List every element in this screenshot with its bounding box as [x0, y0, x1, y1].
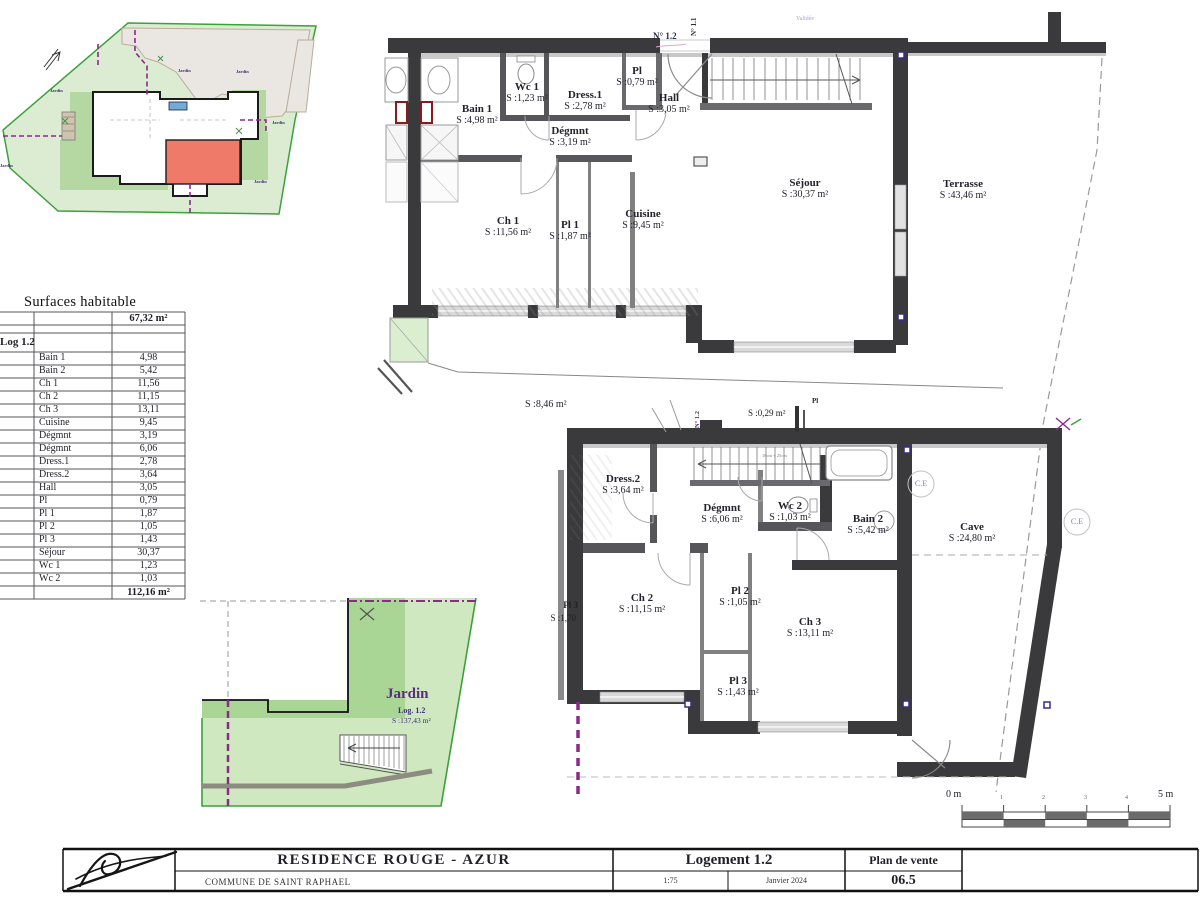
room-label-pl: PlS :0,79 m²	[607, 65, 667, 89]
room-label-terrasse: TerrasseS :43,46 m²	[918, 178, 1008, 202]
table-row: Hall3,05	[34, 482, 185, 495]
radiator-icon	[421, 102, 432, 123]
room-label-dress1: Dress.1S :2,78 m²	[548, 89, 622, 113]
room-area: S :24,80 m²	[928, 533, 1016, 544]
row-value: 6,06	[112, 443, 185, 456]
row-value: 13,11	[112, 404, 185, 417]
room-area: S :1,43 m²	[704, 687, 772, 698]
table-row: Dégmnt6,06	[34, 443, 185, 456]
room-area: S :13,11 m²	[766, 628, 854, 639]
row-value: 4,98	[112, 352, 185, 365]
site-jardin-label: Jardin	[0, 163, 13, 168]
table-row: Wc 11,23	[34, 560, 185, 573]
closet-area: S :0,29 m²	[748, 408, 785, 418]
row-name: Ch 1	[34, 378, 112, 391]
room-label-ch2: Ch 2S :11,15 m²	[598, 592, 686, 616]
table-row: Pl0,79	[34, 495, 185, 508]
row-name: Pl 2	[34, 521, 112, 534]
row-name: Cuisine	[34, 417, 112, 430]
room-name: Bain 2	[826, 513, 910, 525]
room-name: Ch 3	[766, 616, 854, 628]
room-area: S :2,78 m²	[548, 101, 622, 112]
table-row: Séjour30,37	[34, 547, 185, 560]
row-name: Bain 2	[34, 365, 112, 378]
room-name: Hall	[641, 92, 697, 104]
drawing-date: Janvier 2024	[728, 876, 845, 885]
row-value: 11,15	[112, 391, 185, 404]
room-area: S :3,19 m²	[530, 137, 610, 148]
room-area: S :11,15 m²	[598, 604, 686, 615]
site-plan-graphic	[3, 23, 316, 214]
closet-name: Pl	[812, 397, 818, 405]
table-row: Dress.12,78	[34, 456, 185, 469]
project-location: COMMUNE DE SAINT RAPHAEL	[205, 877, 351, 887]
garden-plan-graphic	[200, 598, 476, 806]
row-name: Dress.2	[34, 469, 112, 482]
row-name: Dégmnt	[34, 430, 112, 443]
row-name: Pl 3	[34, 534, 112, 547]
scale-tick: 2	[1042, 795, 1045, 801]
room-name: Cuisine	[601, 208, 685, 220]
room-label-bain2: Bain 2S :5,42 m²	[826, 513, 910, 537]
room-label-pl3: Pl 3S :1,43 m²	[704, 675, 772, 699]
room-area: S :5,42 m²	[826, 525, 910, 536]
room-label-dress2: Dress.2S :3,64 m²	[583, 473, 663, 497]
unit-tag-lower: N° 1.2	[694, 396, 701, 428]
row-value: 3,64	[112, 469, 185, 482]
row-value: 30,37	[112, 547, 185, 560]
room-area: S :0,79 m²	[607, 77, 667, 88]
row-value: 2,78	[112, 456, 185, 469]
room-name: Séjour	[761, 177, 849, 189]
unit-title: Logement 1.2	[613, 852, 845, 869]
room-label-hall: HallS :3,05 m²	[641, 92, 697, 116]
room-name: Terrasse	[918, 178, 1008, 190]
neighbor-closet-name: Pl 3	[524, 600, 578, 610]
room-label-wc2: Wc 2S :1,03 m²	[756, 500, 824, 524]
row-value: 5,42	[112, 365, 185, 378]
ce-label: C.E	[1064, 517, 1090, 526]
surfaces-total: 112,16 m²	[112, 587, 185, 598]
row-value: 1,03	[112, 573, 185, 586]
room-label-sejour: SéjourS :30,37 m²	[761, 177, 849, 201]
stair-note: 18cm + 25cm	[762, 453, 787, 458]
room-name: Wc 2	[756, 500, 824, 512]
room-label-cave: CaveS :24,80 m²	[928, 521, 1016, 545]
neighbor-closet-area: S :1,70	[514, 613, 576, 623]
room-area: S :30,37 m²	[761, 189, 849, 200]
table-row: Cuisine9,45	[34, 417, 185, 430]
room-label-cuisine: CuisineS :9,45 m²	[601, 208, 685, 232]
room-area: S :1,87 m²	[538, 231, 602, 242]
table-row: Ch 211,15	[34, 391, 185, 404]
terrace-boundary-dashed	[996, 58, 1102, 792]
room-label-ch3: Ch 3S :13,11 m²	[766, 616, 854, 640]
room-area: S :4,98 m²	[437, 115, 517, 126]
north-arrow-icon	[44, 49, 60, 70]
surfaces-group-label: Log 1.2	[0, 336, 35, 348]
table-row: Pl 11,87	[34, 508, 185, 521]
scale-tick: 3	[1084, 795, 1087, 801]
garden-strip-area: S :8,46 m²	[525, 399, 567, 410]
table-row: Pl 31,43	[34, 534, 185, 547]
site-jardin-label: Jardin	[254, 179, 267, 184]
room-area: S :9,45 m²	[601, 220, 685, 231]
row-value: 1,87	[112, 508, 185, 521]
project-title: RESIDENCE ROUGE - AZUR	[175, 852, 613, 869]
doc-type: Plan de vente	[845, 853, 962, 868]
signature	[68, 852, 176, 889]
watermark	[432, 288, 698, 316]
room-name: Pl 3	[704, 675, 772, 687]
upper-stairs	[712, 58, 860, 100]
room-name: Dégmnt	[530, 125, 610, 137]
table-row: Bain 14,98	[34, 352, 185, 365]
row-value: 1,05	[112, 521, 185, 534]
site-jardin-label: Jardin	[50, 88, 63, 93]
room-label-pl1: Pl 1S :1,87 m²	[538, 219, 602, 243]
table-row: Ch 111,56	[34, 378, 185, 391]
site-jardin-label: Jardin	[178, 68, 191, 73]
row-value: 11,56	[112, 378, 185, 391]
row-name: Séjour	[34, 547, 112, 560]
room-label-pl2: Pl 2S :1,05 m²	[706, 585, 774, 609]
scale-end: 5 m	[1158, 789, 1173, 800]
row-value: 0,79	[112, 495, 185, 508]
plan-sheet: { "surfaces_table": { "title": "Surfaces…	[0, 0, 1200, 900]
room-area: S :43,46 m²	[918, 190, 1008, 201]
site-jardin-label: Jardin	[272, 120, 285, 125]
row-value: 3,05	[112, 482, 185, 495]
unit-tag-upper: N° 1.2	[653, 31, 677, 41]
room-name: Cave	[928, 521, 1016, 533]
row-value: 1,43	[112, 534, 185, 547]
row-name: Wc 1	[34, 560, 112, 573]
room-name: Dress.1	[548, 89, 622, 101]
site-unit-highlight	[166, 140, 240, 184]
scale-tick: 4	[1125, 795, 1128, 801]
ce-label: C.E	[908, 479, 934, 488]
room-name: Pl 1	[538, 219, 602, 231]
room-name: Pl 2	[706, 585, 774, 597]
row-name: Dress.1	[34, 456, 112, 469]
room-area: S :6,06 m²	[682, 514, 762, 525]
row-value: 1,23	[112, 560, 185, 573]
site-pool-marker	[169, 102, 187, 110]
table-row: Wc 21,03	[34, 573, 185, 586]
sheet-number: 06.5	[845, 873, 962, 889]
room-area: S :3,05 m²	[641, 104, 697, 115]
site-jardin-label: Jardin	[236, 69, 249, 74]
table-row: Bain 25,42	[34, 365, 185, 378]
row-value: 3,19	[112, 430, 185, 443]
row-name: Ch 3	[34, 404, 112, 417]
room-name: Ch 2	[598, 592, 686, 604]
watermark	[570, 455, 612, 540]
row-name: Bain 1	[34, 352, 112, 365]
room-name: Dress.2	[583, 473, 663, 485]
neighbor-unit-tag: N° 1.1	[690, 4, 698, 36]
surfaces-table-title: Surfaces habitable	[24, 294, 136, 311]
row-name: Dégmnt	[34, 443, 112, 456]
garden-area: S :137,43 m²	[392, 716, 431, 725]
surfaces-subtotal: 67,32 m²	[112, 313, 185, 324]
room-name: Dégmnt	[682, 502, 762, 514]
row-value: 9,45	[112, 417, 185, 430]
radiator-icon	[396, 102, 407, 123]
room-area: S :1,03 m²	[756, 512, 824, 523]
row-name: Wc 2	[34, 573, 112, 586]
room-label-degmnt2: DégmntS :6,06 m²	[682, 502, 762, 526]
room-label-bain1: Bain 1S :4,98 m²	[437, 103, 517, 127]
table-row: Dégmnt3,19	[34, 430, 185, 443]
row-name: Pl 1	[34, 508, 112, 521]
room-area: S :3,64 m²	[583, 485, 663, 496]
scale-tick: 1	[1000, 795, 1003, 801]
table-row: Ch 313,11	[34, 404, 185, 417]
room-name: Bain 1	[437, 103, 517, 115]
table-row: Dress.23,64	[34, 469, 185, 482]
room-name: Pl	[607, 65, 667, 77]
garden-title: Jardin	[386, 686, 429, 703]
scale-start: 0 m	[946, 789, 961, 800]
scale-bar-graphic	[962, 805, 1170, 827]
drawing-scale: 1:75	[613, 876, 728, 885]
row-name: Pl	[34, 495, 112, 508]
room-label-degmnt1: DégmntS :3,19 m²	[530, 125, 610, 149]
row-name: Hall	[34, 482, 112, 495]
garden-unit: Log. 1.2	[398, 706, 425, 715]
table-row: Pl 21,05	[34, 521, 185, 534]
row-name: Ch 2	[34, 391, 112, 404]
validation-stamp: Validée	[796, 16, 814, 22]
room-area: S :1,05 m²	[706, 597, 774, 608]
